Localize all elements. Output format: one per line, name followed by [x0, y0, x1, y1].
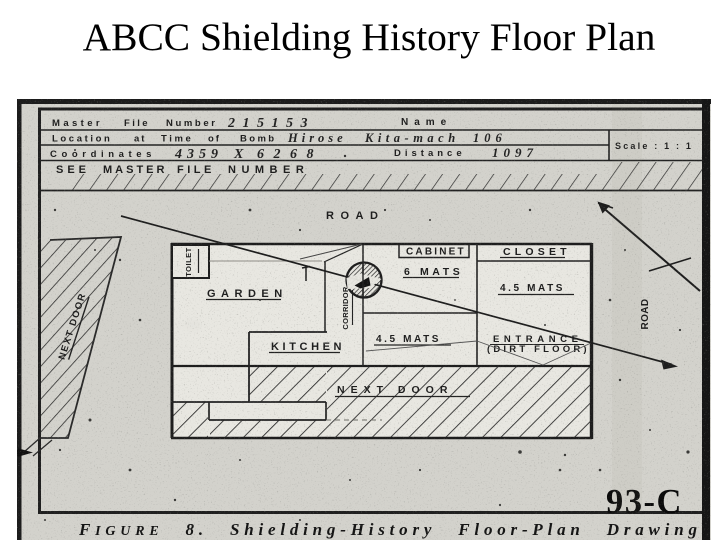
svg-text:ABCC Shielding History Floor P: ABCC Shielding History Floor Plan	[83, 15, 656, 59]
